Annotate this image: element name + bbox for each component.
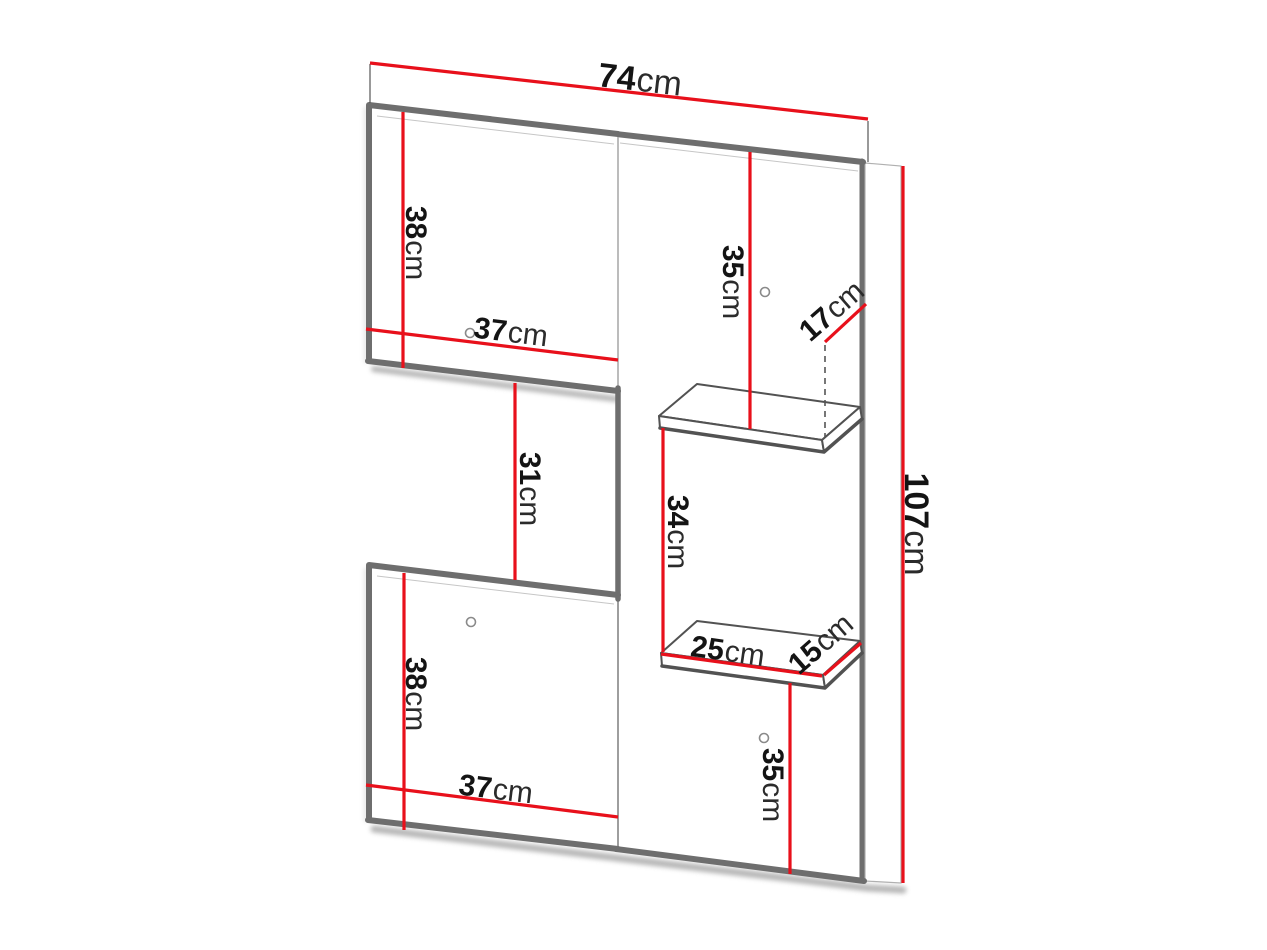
- dim-label-upper-cabinet-height: 38cm: [399, 206, 432, 280]
- mounting-hole: [760, 734, 769, 743]
- furniture-dimension-diagram: 74cm 107cm 38cm 37cm 31cm 35cm 17cm 34cm…: [0, 0, 1267, 950]
- dim-label-lower-clearance: 35cm: [756, 748, 789, 822]
- mounting-hole: [467, 618, 476, 627]
- dim-label-lower-cabinet-height: 38cm: [399, 657, 432, 731]
- panel-side-face: [865, 163, 901, 883]
- dim-label-middle-gap: 31cm: [513, 452, 546, 526]
- mounting-hole: [761, 288, 770, 297]
- dim-label-between-shelves: 34cm: [661, 495, 694, 569]
- dim-label-upper-clearance: 35cm: [716, 245, 749, 319]
- dim-label-overall-height: 107cm: [897, 472, 935, 575]
